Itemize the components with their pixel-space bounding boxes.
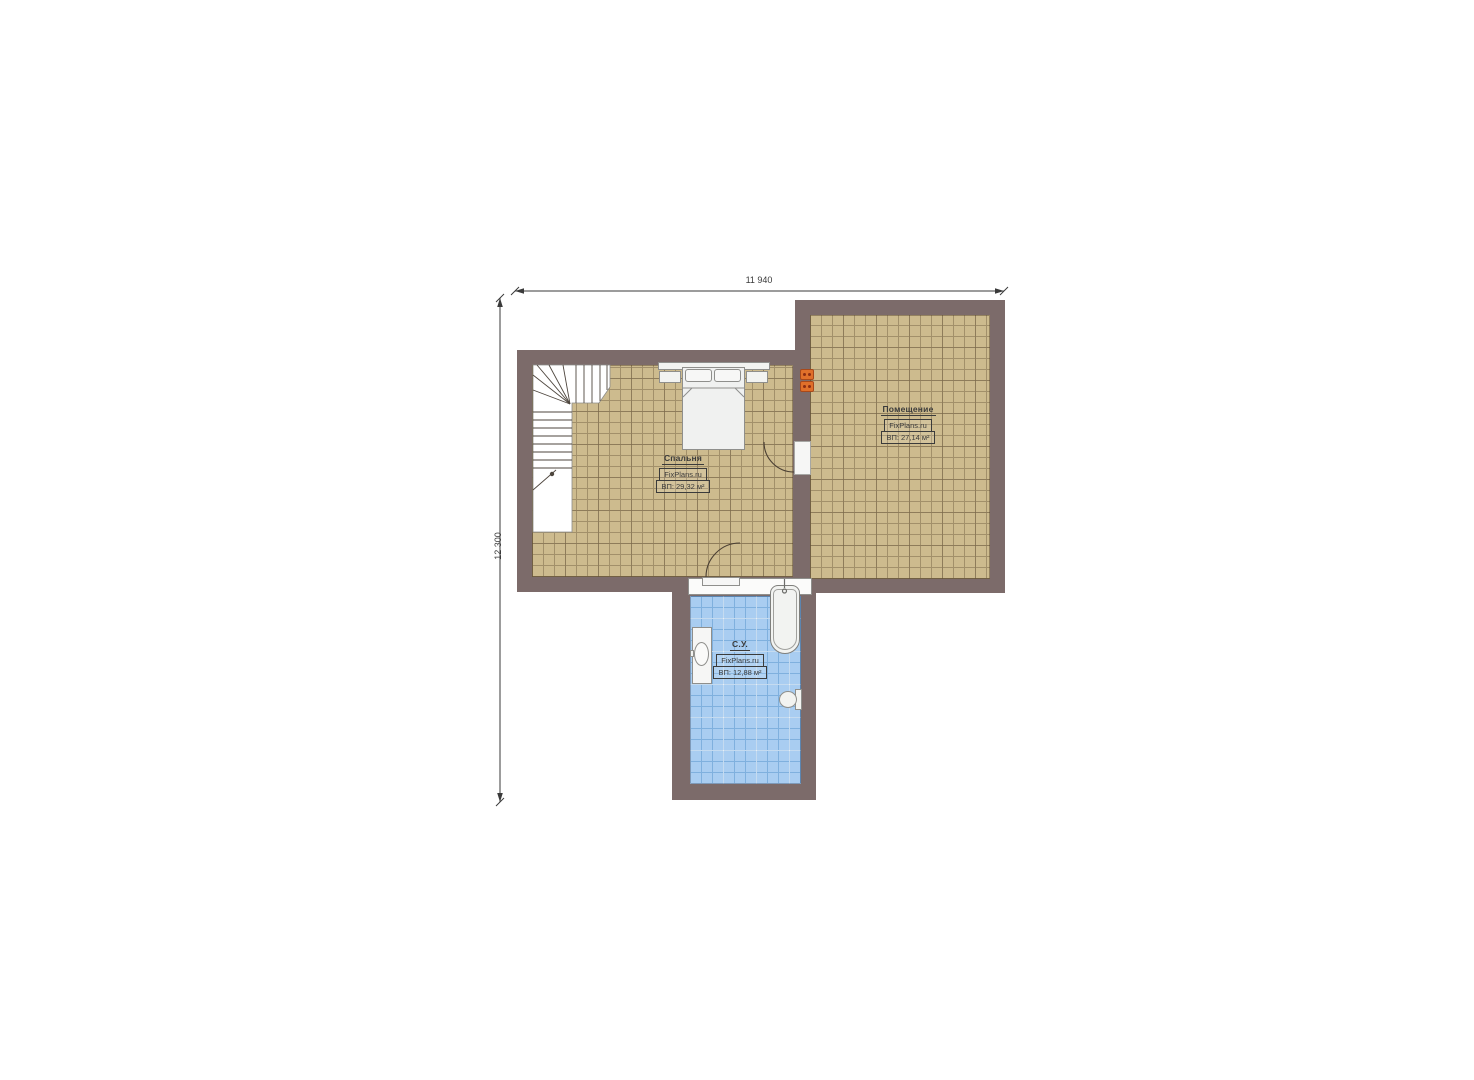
area-value: ВП: 12,88 м² [713,666,766,679]
room-name: С.У. [730,639,750,651]
dimension-line-top [511,287,1008,295]
room-name: Спальня [662,453,704,465]
radiator-icon [800,381,814,392]
room-floor [810,315,990,579]
radiator-icon [800,369,814,380]
room-label-bedroom: Спальня FixPlans.ru ВП: 29,32 м² [628,453,738,493]
area-value: ВП: 27,14 м² [881,431,934,444]
pillow-right [714,369,741,382]
pillow-left [685,369,712,382]
room-label-room: Помещение FixPlans.ru ВП: 27,14 м² [853,404,963,444]
door-leaf-bathroom [702,577,740,586]
room-name: Помещение [881,404,936,416]
toilet-icon [779,691,797,708]
area-value: ВП: 29,32 м² [656,480,709,493]
dimension-height-label: 12 300 [493,522,503,570]
nightstand-left [659,371,681,383]
floor-plan-canvas: Спальня FixPlans.ru ВП: 29,32 м² Помещен… [0,0,1474,1080]
nightstand-right [746,371,768,383]
door-opening-bedroom-room [794,441,811,475]
room-label-bathroom: С.У. FixPlans.ru ВП: 12,88 м² [685,639,795,679]
dimension-width-label: 11 940 [735,275,783,285]
